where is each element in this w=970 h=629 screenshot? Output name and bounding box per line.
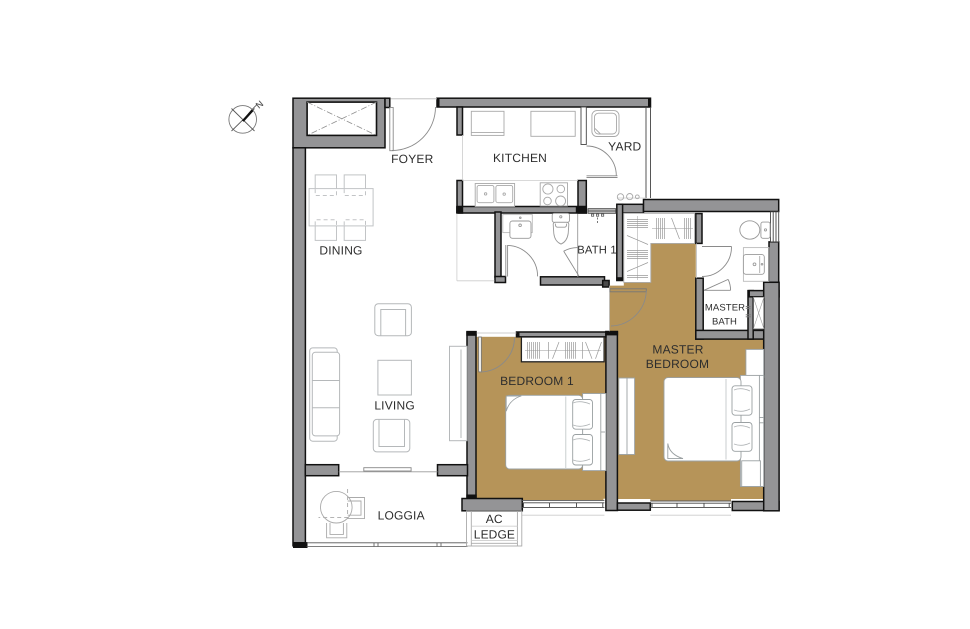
svg-text:LEDGE: LEDGE [474,528,515,542]
svg-text:LOGGIA: LOGGIA [378,509,425,523]
svg-text:MASTER: MASTER [705,303,745,314]
svg-text:BATH: BATH [712,317,737,328]
svg-text:AC: AC [486,512,503,526]
svg-text:DINING: DINING [319,244,362,258]
svg-text:KITCHEN: KITCHEN [493,151,547,165]
svg-text:YARD: YARD [608,140,641,154]
svg-text:BEDROOM: BEDROOM [646,357,709,371]
svg-text:BATH 1: BATH 1 [577,245,617,257]
svg-text:BEDROOM 1: BEDROOM 1 [500,374,574,388]
svg-text:LIVING: LIVING [374,399,415,413]
svg-text:MASTER: MASTER [652,343,703,357]
svg-text:FOYER: FOYER [391,152,433,166]
